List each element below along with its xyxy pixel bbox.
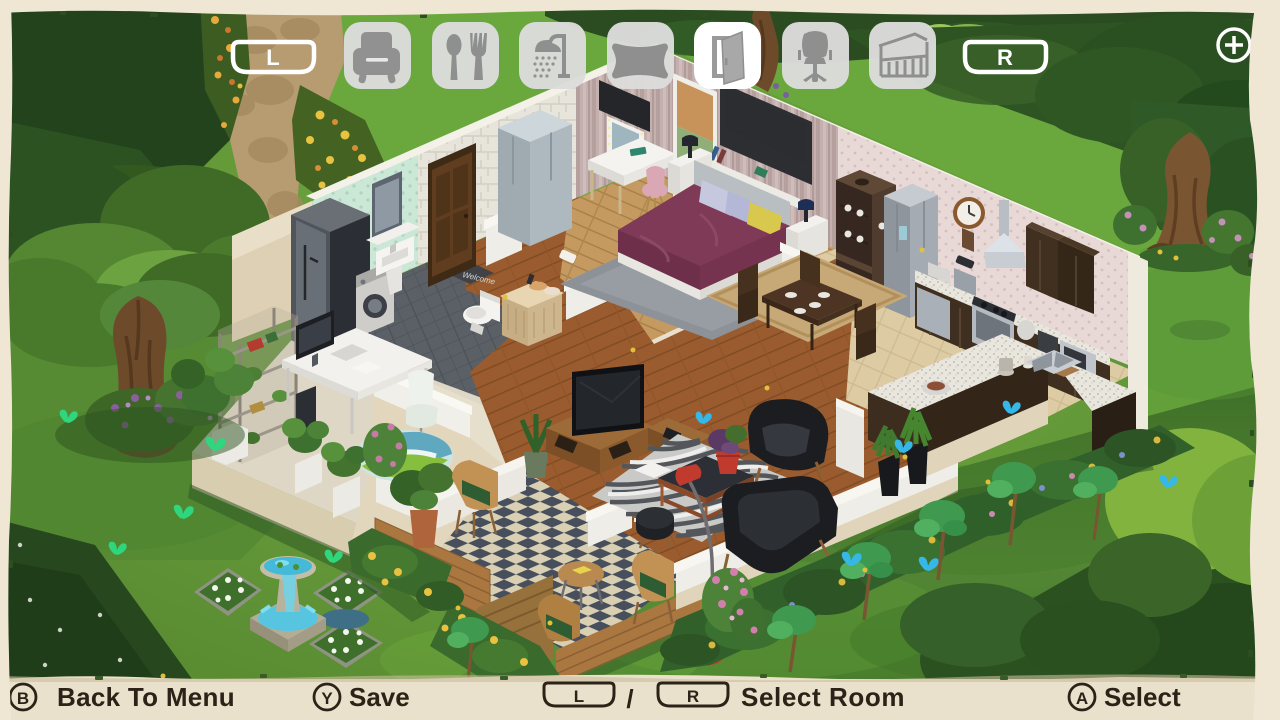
svg-text:Save: Save (349, 682, 410, 712)
svg-text:R: R (687, 687, 699, 706)
svg-text:L: L (574, 687, 584, 706)
svg-text:Select Room: Select Room (741, 682, 905, 712)
svg-text:Select: Select (1104, 682, 1181, 712)
svg-text:Y: Y (321, 689, 333, 708)
svg-text:/: / (626, 684, 633, 714)
svg-text:Back To Menu: Back To Menu (57, 682, 235, 712)
svg-text:L: L (266, 45, 279, 70)
svg-text:R: R (997, 45, 1013, 70)
svg-text:A: A (1076, 689, 1088, 708)
svg-text:B: B (17, 689, 29, 708)
